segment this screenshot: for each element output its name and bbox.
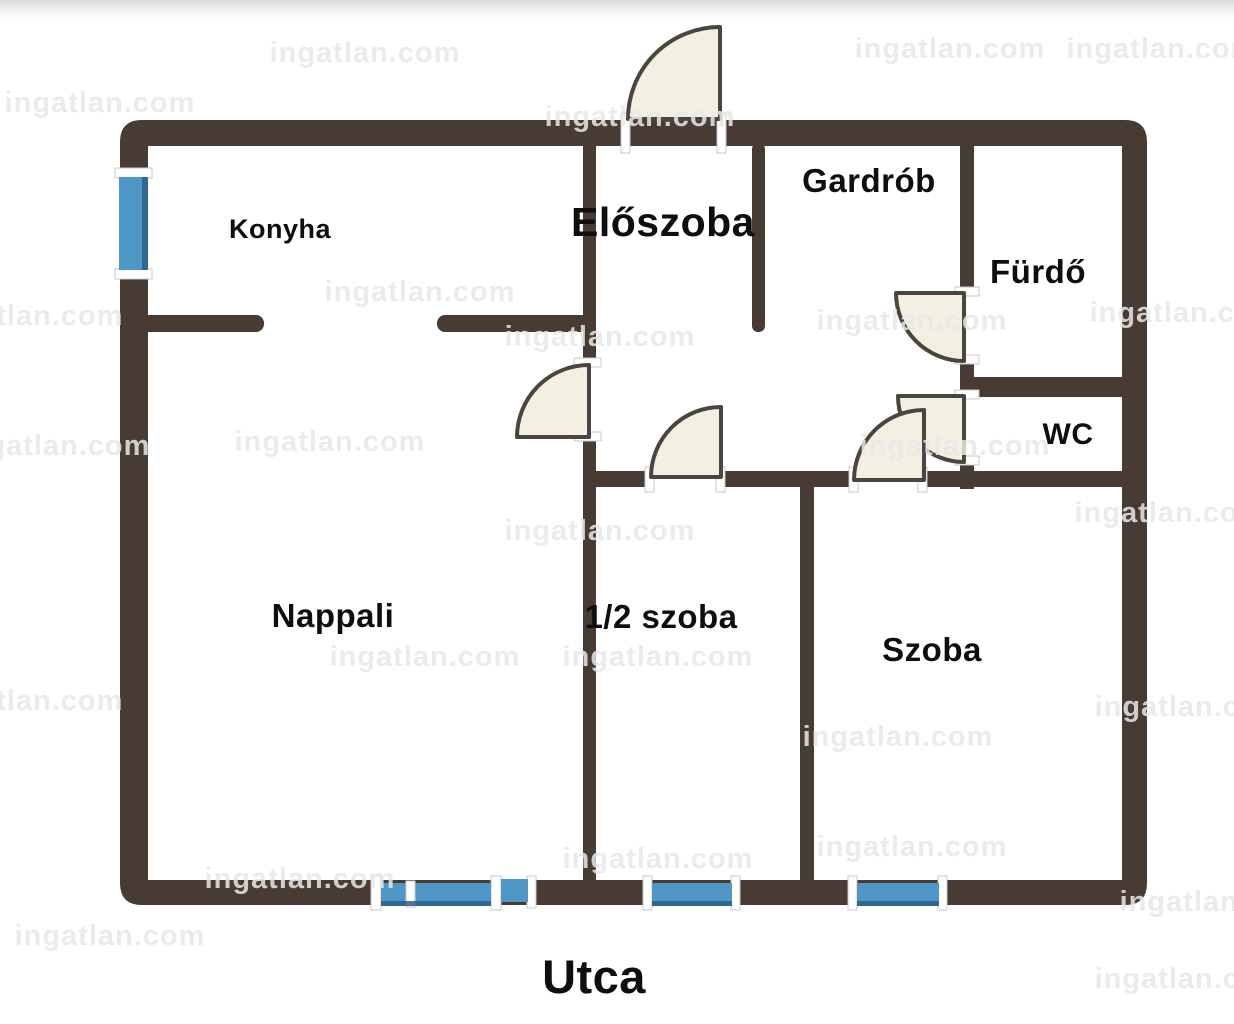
- window-cap: [527, 876, 536, 908]
- wall-hall-bottom-b: [721, 471, 854, 487]
- room-label-felszoba: 1/2 szoba: [584, 598, 737, 635]
- window-felszoba-edge: [652, 901, 732, 906]
- watermark-text: ingatlan.com: [205, 863, 396, 895]
- room-label-szoba: Szoba: [882, 631, 982, 668]
- window-szoba-edge: [857, 901, 939, 906]
- watermark-text: ingatlan.com: [330, 641, 521, 673]
- watermark-text: ingatlan.com: [505, 515, 696, 547]
- wall-furdo-bottom: [960, 377, 1124, 397]
- watermark-text: ingatlan.com: [817, 305, 1008, 337]
- watermark-text: ingatlan.com: [817, 831, 1008, 863]
- window-cap: [491, 876, 501, 910]
- room-label-gardrob: Gardrób: [802, 162, 936, 199]
- window-cap: [643, 876, 652, 910]
- watermark-text: ingatlan.com: [1075, 497, 1234, 529]
- watermark-text: ingatlan.com: [505, 321, 696, 353]
- street-label: Utca: [542, 950, 646, 1003]
- room-label-eloszoba: Előszoba: [571, 199, 756, 245]
- watermark-text: ingatlan.com: [1095, 963, 1234, 995]
- watermark-text: ingatlan.com: [563, 843, 754, 875]
- watermark-text: ingatlan.com: [1067, 33, 1234, 65]
- watermark-text: ingatlan.com: [0, 430, 150, 462]
- watermark-text: ingatlan.com: [803, 721, 994, 753]
- window-cap: [938, 876, 947, 910]
- watermark-text: ingatlan.com: [545, 101, 736, 133]
- wall-hall-bottom-c: [924, 471, 1124, 487]
- watermark-text: ingatlan.com: [235, 426, 426, 458]
- watermark-text: ingatlan.com: [5, 87, 196, 119]
- watermark-text: ingatlan.com: [270, 37, 461, 69]
- wall-konyha-stub-left: [140, 315, 264, 332]
- floor-plan: Konyha Előszoba Gardrób Fürdő WC Nappali…: [0, 0, 1234, 1024]
- wall-furdo-left-upper: [960, 143, 974, 293]
- watermark-text: ingatlan.com: [0, 685, 123, 717]
- room-label-konyha: Konyha: [229, 214, 331, 244]
- window-cap: [848, 876, 857, 910]
- watermark-text: ingatlan.com: [860, 430, 1051, 462]
- watermark-text: ingatlan.com: [1095, 691, 1234, 723]
- window-cap: [115, 269, 152, 279]
- watermark-text: ingatlan.com: [1090, 297, 1234, 329]
- room-label-nappali: Nappali: [272, 597, 395, 634]
- room-label-furdo: Fürdő: [990, 253, 1086, 290]
- watermark-text: ingatlan.com: [1120, 886, 1234, 918]
- window-cap: [731, 876, 740, 910]
- window-nappali-2: [501, 879, 528, 902]
- window-nappali-edge: [381, 901, 491, 906]
- window-cap: [115, 168, 152, 178]
- wall-hall-bottom-a: [583, 471, 651, 487]
- watermark-text: ingatlan.com: [0, 300, 123, 332]
- watermark-text: ingatlan.com: [325, 276, 516, 308]
- watermark-text: ingatlan.com: [15, 920, 206, 952]
- watermark-text: ingatlan.com: [563, 641, 754, 673]
- watermark-text: ingatlan.com: [855, 33, 1046, 65]
- wall-szoba-divider: [800, 471, 814, 882]
- top-shade: [0, 0, 1234, 26]
- window-konyha-edge: [142, 177, 148, 270]
